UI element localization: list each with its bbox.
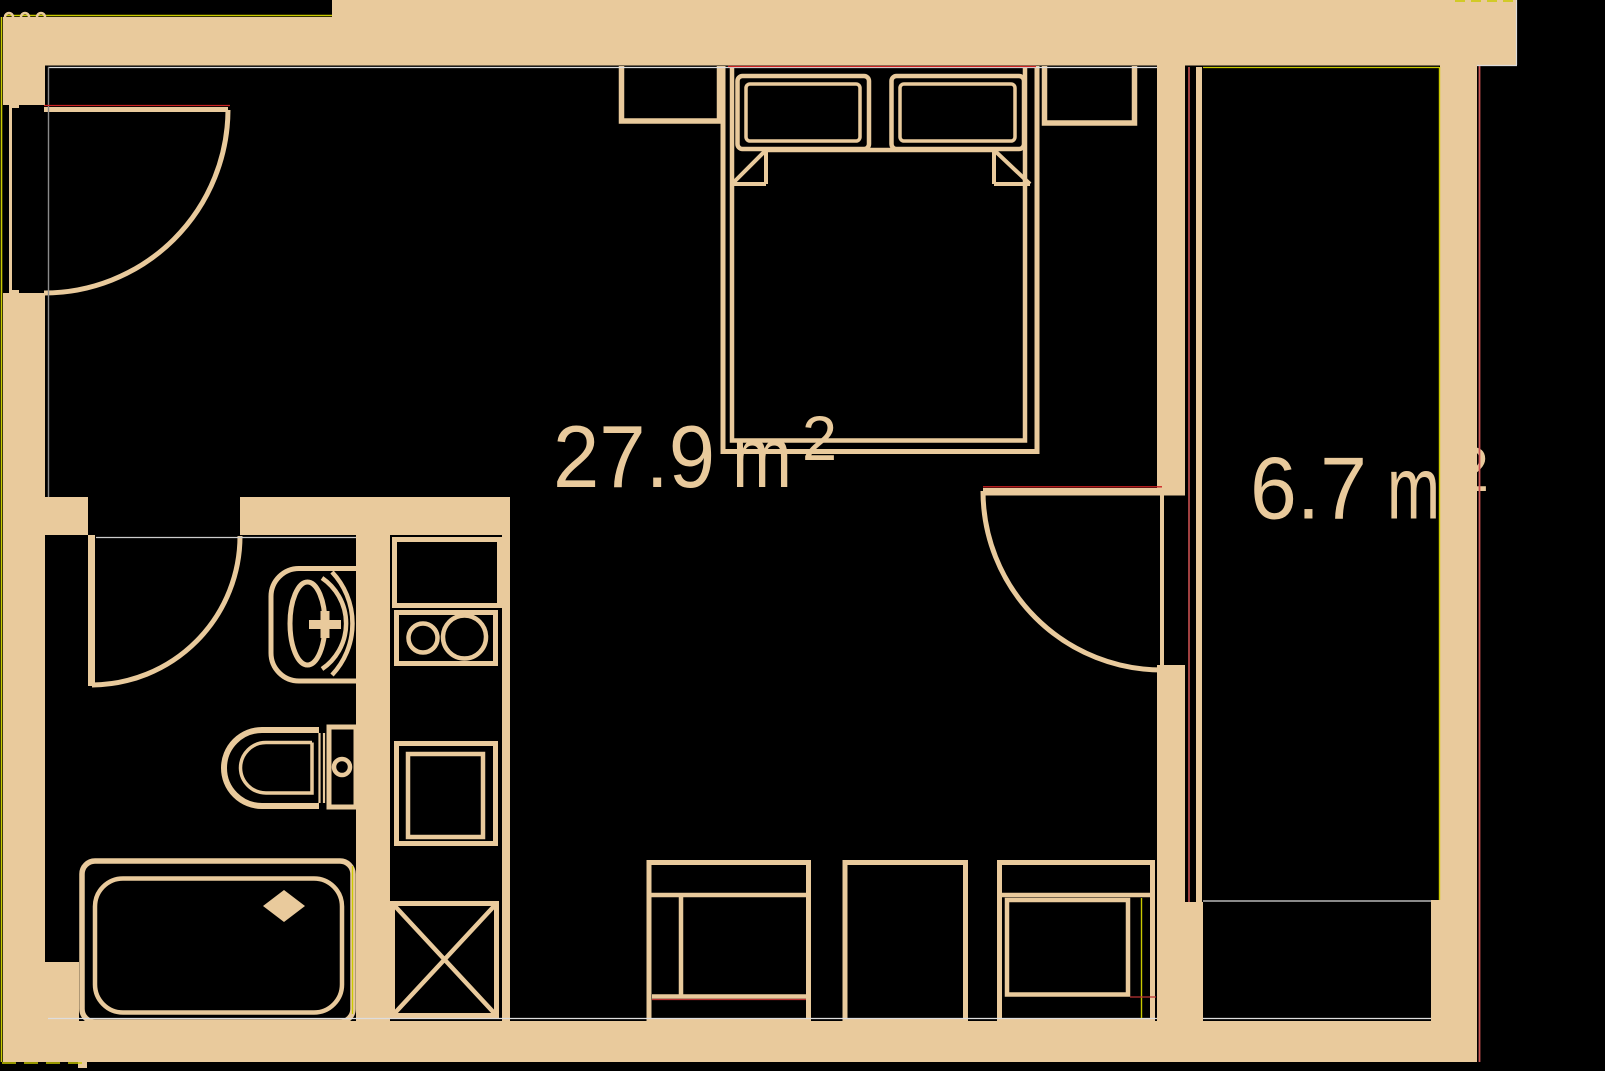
svg-text:27.9: 27.9: [553, 407, 715, 506]
svg-text:6.7: 6.7: [1250, 439, 1367, 538]
svg-text:m: m: [1387, 439, 1440, 538]
svg-text:m: m: [732, 407, 792, 506]
